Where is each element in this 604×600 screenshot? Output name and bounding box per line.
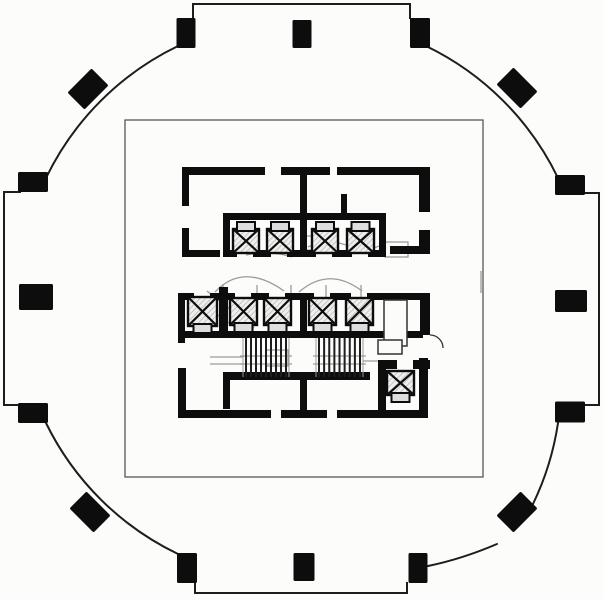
floor-plan-drawing <box>0 0 604 600</box>
shaft-outline <box>384 300 407 346</box>
corner-column <box>496 67 537 108</box>
core-wall <box>413 360 430 369</box>
core-wall <box>182 167 265 175</box>
elevator-cab <box>312 222 338 253</box>
core-wall <box>419 175 430 212</box>
perimeter-column <box>18 172 48 192</box>
perimeter-column <box>18 403 48 423</box>
perimeter-column <box>555 402 585 423</box>
elevator-cab <box>309 298 336 332</box>
building-corner-arc <box>46 46 178 178</box>
perimeter-column <box>293 20 312 48</box>
corner-column <box>67 68 108 109</box>
counterweight-bar <box>352 222 370 231</box>
stair-run <box>313 338 366 377</box>
corner-column <box>496 491 537 532</box>
elevator-cab <box>387 371 414 402</box>
elevator-cab <box>264 298 291 332</box>
perimeter-column <box>177 18 196 48</box>
stair-runs <box>240 338 366 377</box>
core-wall <box>281 410 327 418</box>
perimeter-column <box>177 553 197 583</box>
core-wall <box>223 213 386 220</box>
elevator-cab <box>188 297 217 333</box>
ghost-line <box>299 279 362 292</box>
perimeter-column <box>294 553 315 581</box>
core-wall <box>223 380 230 409</box>
counterweight-bar <box>351 323 369 332</box>
perimeter-column <box>409 553 428 583</box>
building-corner-arc <box>533 423 558 504</box>
floor-plan-scan <box>0 0 604 600</box>
corner-column <box>69 491 110 532</box>
perimeter-column <box>555 290 587 312</box>
core-wall <box>300 380 307 411</box>
counterweight-bar <box>235 323 253 332</box>
counterweight-bar <box>271 222 289 231</box>
core-wall <box>300 220 307 251</box>
core-wall <box>341 194 347 215</box>
core-wall <box>182 175 189 206</box>
counterweight-bar <box>392 393 410 402</box>
counterweight-bar <box>237 222 255 231</box>
counterweight-bar <box>314 323 332 332</box>
elevator-cab <box>233 222 259 253</box>
building-corner-arc <box>428 544 497 566</box>
core-wall <box>281 167 330 175</box>
door-swing-arc <box>430 335 443 348</box>
core-wall <box>390 246 430 254</box>
elevator-cab <box>346 298 373 332</box>
elevator-cab <box>347 222 374 253</box>
perimeter-column <box>19 284 53 310</box>
perimeter-column <box>410 18 430 48</box>
elevator-cab <box>267 222 293 253</box>
core-wall <box>378 360 397 369</box>
core-wall <box>182 250 220 257</box>
core-wall <box>182 228 189 250</box>
core-wall <box>337 167 430 175</box>
building-corner-arc <box>46 423 178 554</box>
core-wall <box>219 287 228 337</box>
core-wall <box>178 410 271 418</box>
building-corner-arc <box>426 46 558 178</box>
counterweight-bar <box>269 323 287 332</box>
core-wall <box>178 293 185 343</box>
perimeter-column <box>555 175 585 195</box>
elevator-cab <box>230 298 257 332</box>
stair-run <box>240 338 292 377</box>
shaft-outline <box>378 340 402 354</box>
core-wall <box>420 293 430 335</box>
counterweight-bar <box>316 222 334 231</box>
core-wall <box>378 369 386 418</box>
counterweight-bar <box>194 324 212 333</box>
